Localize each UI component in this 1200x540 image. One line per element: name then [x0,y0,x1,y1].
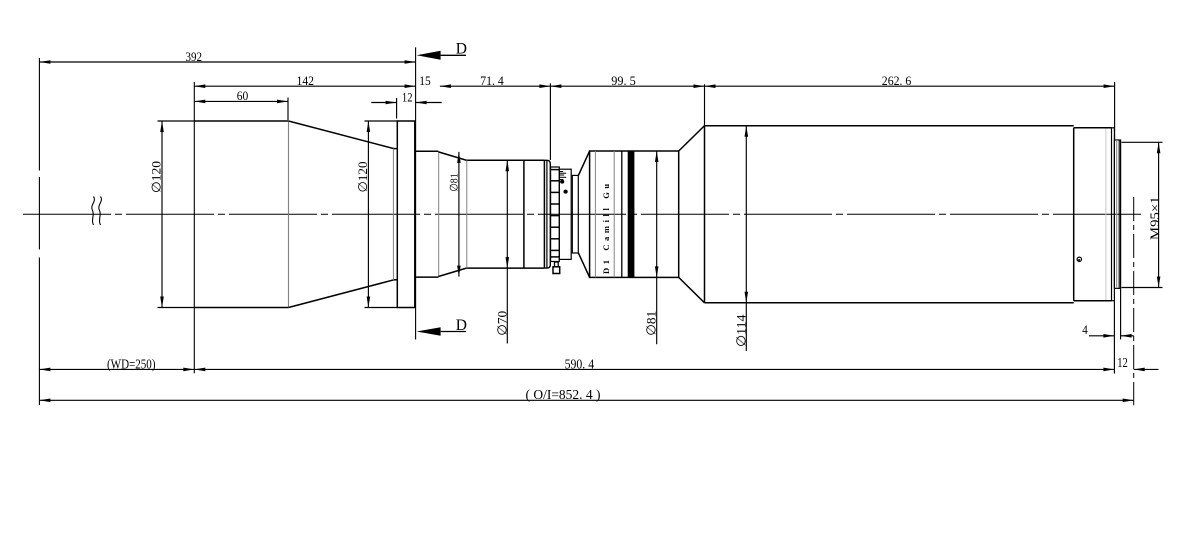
svg-text:71. 4: 71. 4 [480,73,504,88]
svg-text:D1 Camill Gu: D1 Camill Gu [601,180,611,274]
svg-text:∅114: ∅114 [734,314,749,347]
svg-text:392: 392 [186,49,203,64]
svg-text:∅70: ∅70 [495,311,510,336]
svg-text:∅120: ∅120 [356,162,370,193]
svg-text:D: D [456,41,467,58]
svg-text:12: 12 [402,89,413,104]
svg-text:60: 60 [237,88,249,103]
svg-text:590. 4: 590. 4 [565,358,595,373]
svg-text:∅120: ∅120 [150,161,164,193]
svg-text:12: 12 [1117,356,1128,371]
svg-text:15: 15 [419,73,431,88]
svg-text:(WD=250): (WD=250) [107,358,156,373]
svg-text:142: 142 [297,73,315,88]
svg-text:99. 5: 99. 5 [611,73,636,88]
svg-text:M95×1: M95×1 [1148,197,1162,241]
svg-text:∅81: ∅81 [448,173,460,192]
svg-text:( O/I=852. 4 ): ( O/I=852. 4 ) [526,388,601,403]
svg-text:262. 6: 262. 6 [882,73,912,88]
svg-text:D: D [456,317,467,334]
svg-text:4: 4 [1082,322,1088,337]
svg-text:∅81: ∅81 [644,311,659,336]
